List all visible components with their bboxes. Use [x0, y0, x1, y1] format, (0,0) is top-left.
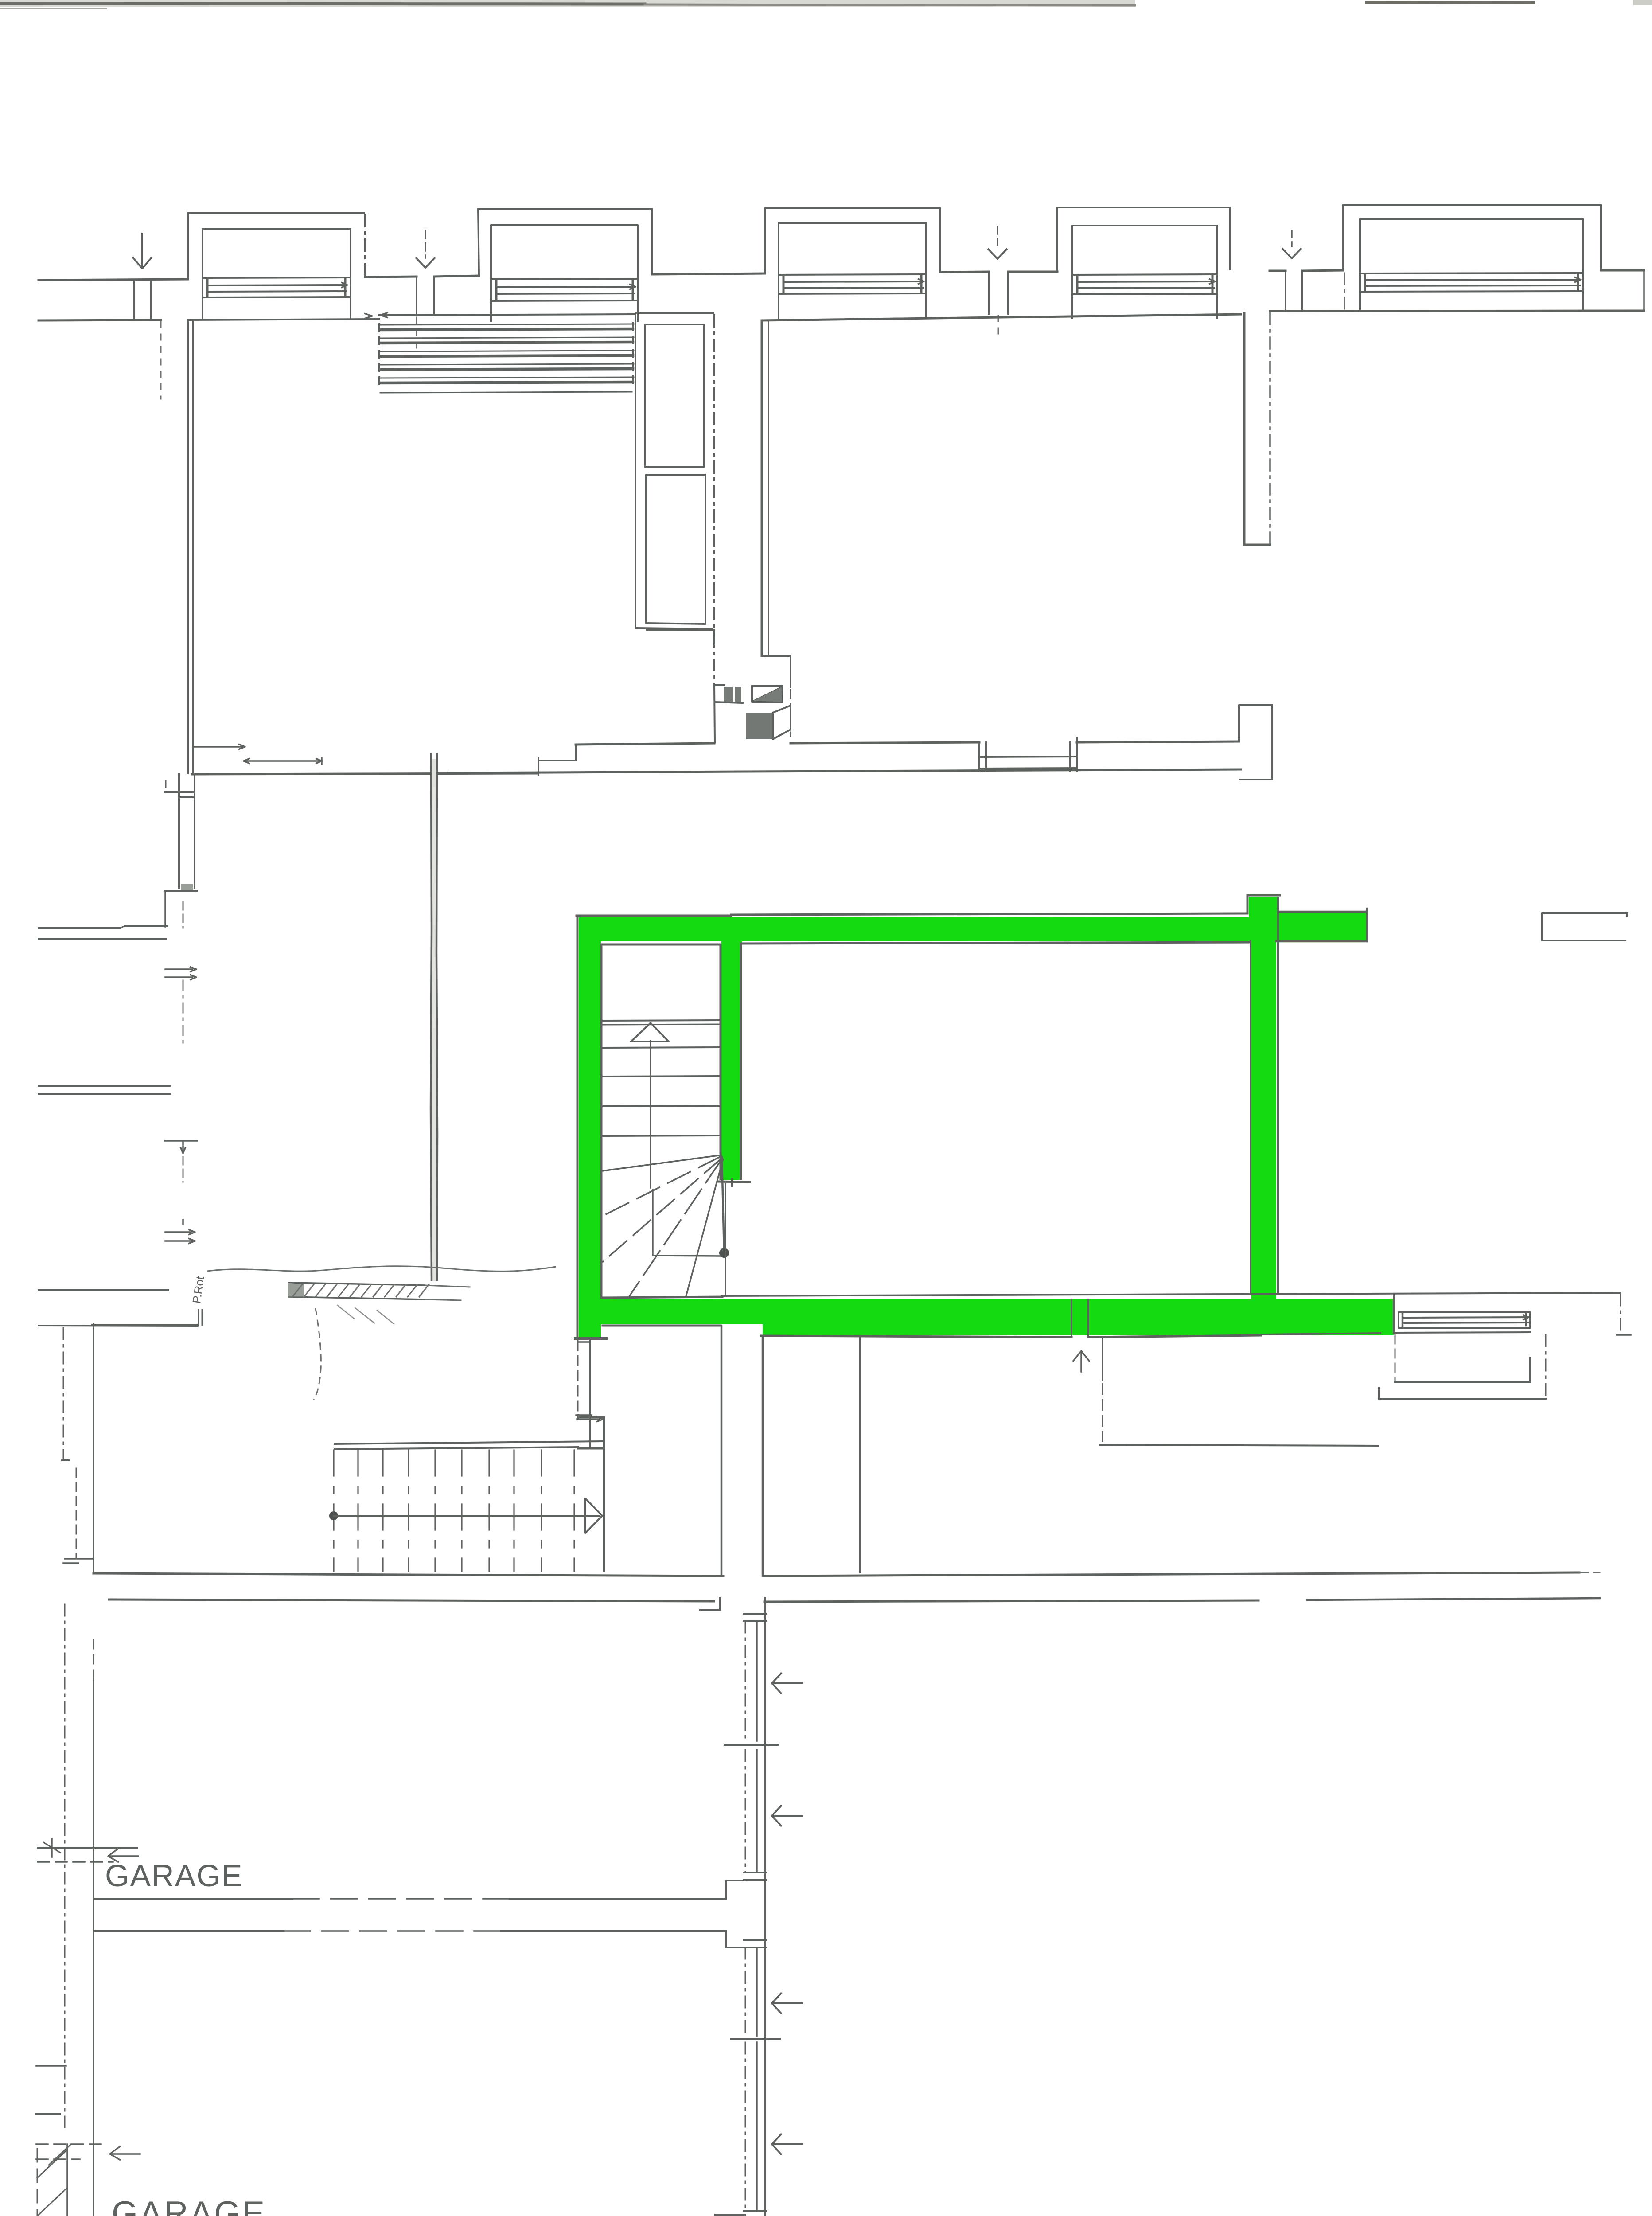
svg-text:GARAGE: GARAGE: [105, 1858, 243, 1893]
svg-text:GARAGE: GARAGE: [112, 2195, 266, 2216]
